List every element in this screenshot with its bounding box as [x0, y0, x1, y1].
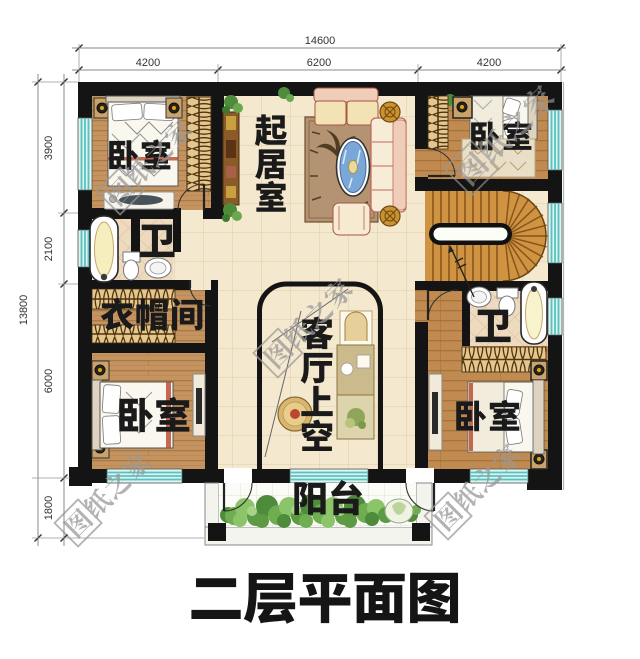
svg-text:1800: 1800	[43, 496, 55, 520]
svg-text:6200: 6200	[307, 57, 331, 69]
svg-text:14600: 14600	[305, 35, 336, 47]
svg-text:13800: 13800	[18, 295, 30, 326]
svg-text:4200: 4200	[136, 57, 160, 69]
svg-text:4200: 4200	[477, 57, 501, 69]
svg-text:2100: 2100	[43, 237, 55, 261]
svg-text:6000: 6000	[43, 369, 55, 393]
svg-text:3900: 3900	[43, 136, 55, 160]
